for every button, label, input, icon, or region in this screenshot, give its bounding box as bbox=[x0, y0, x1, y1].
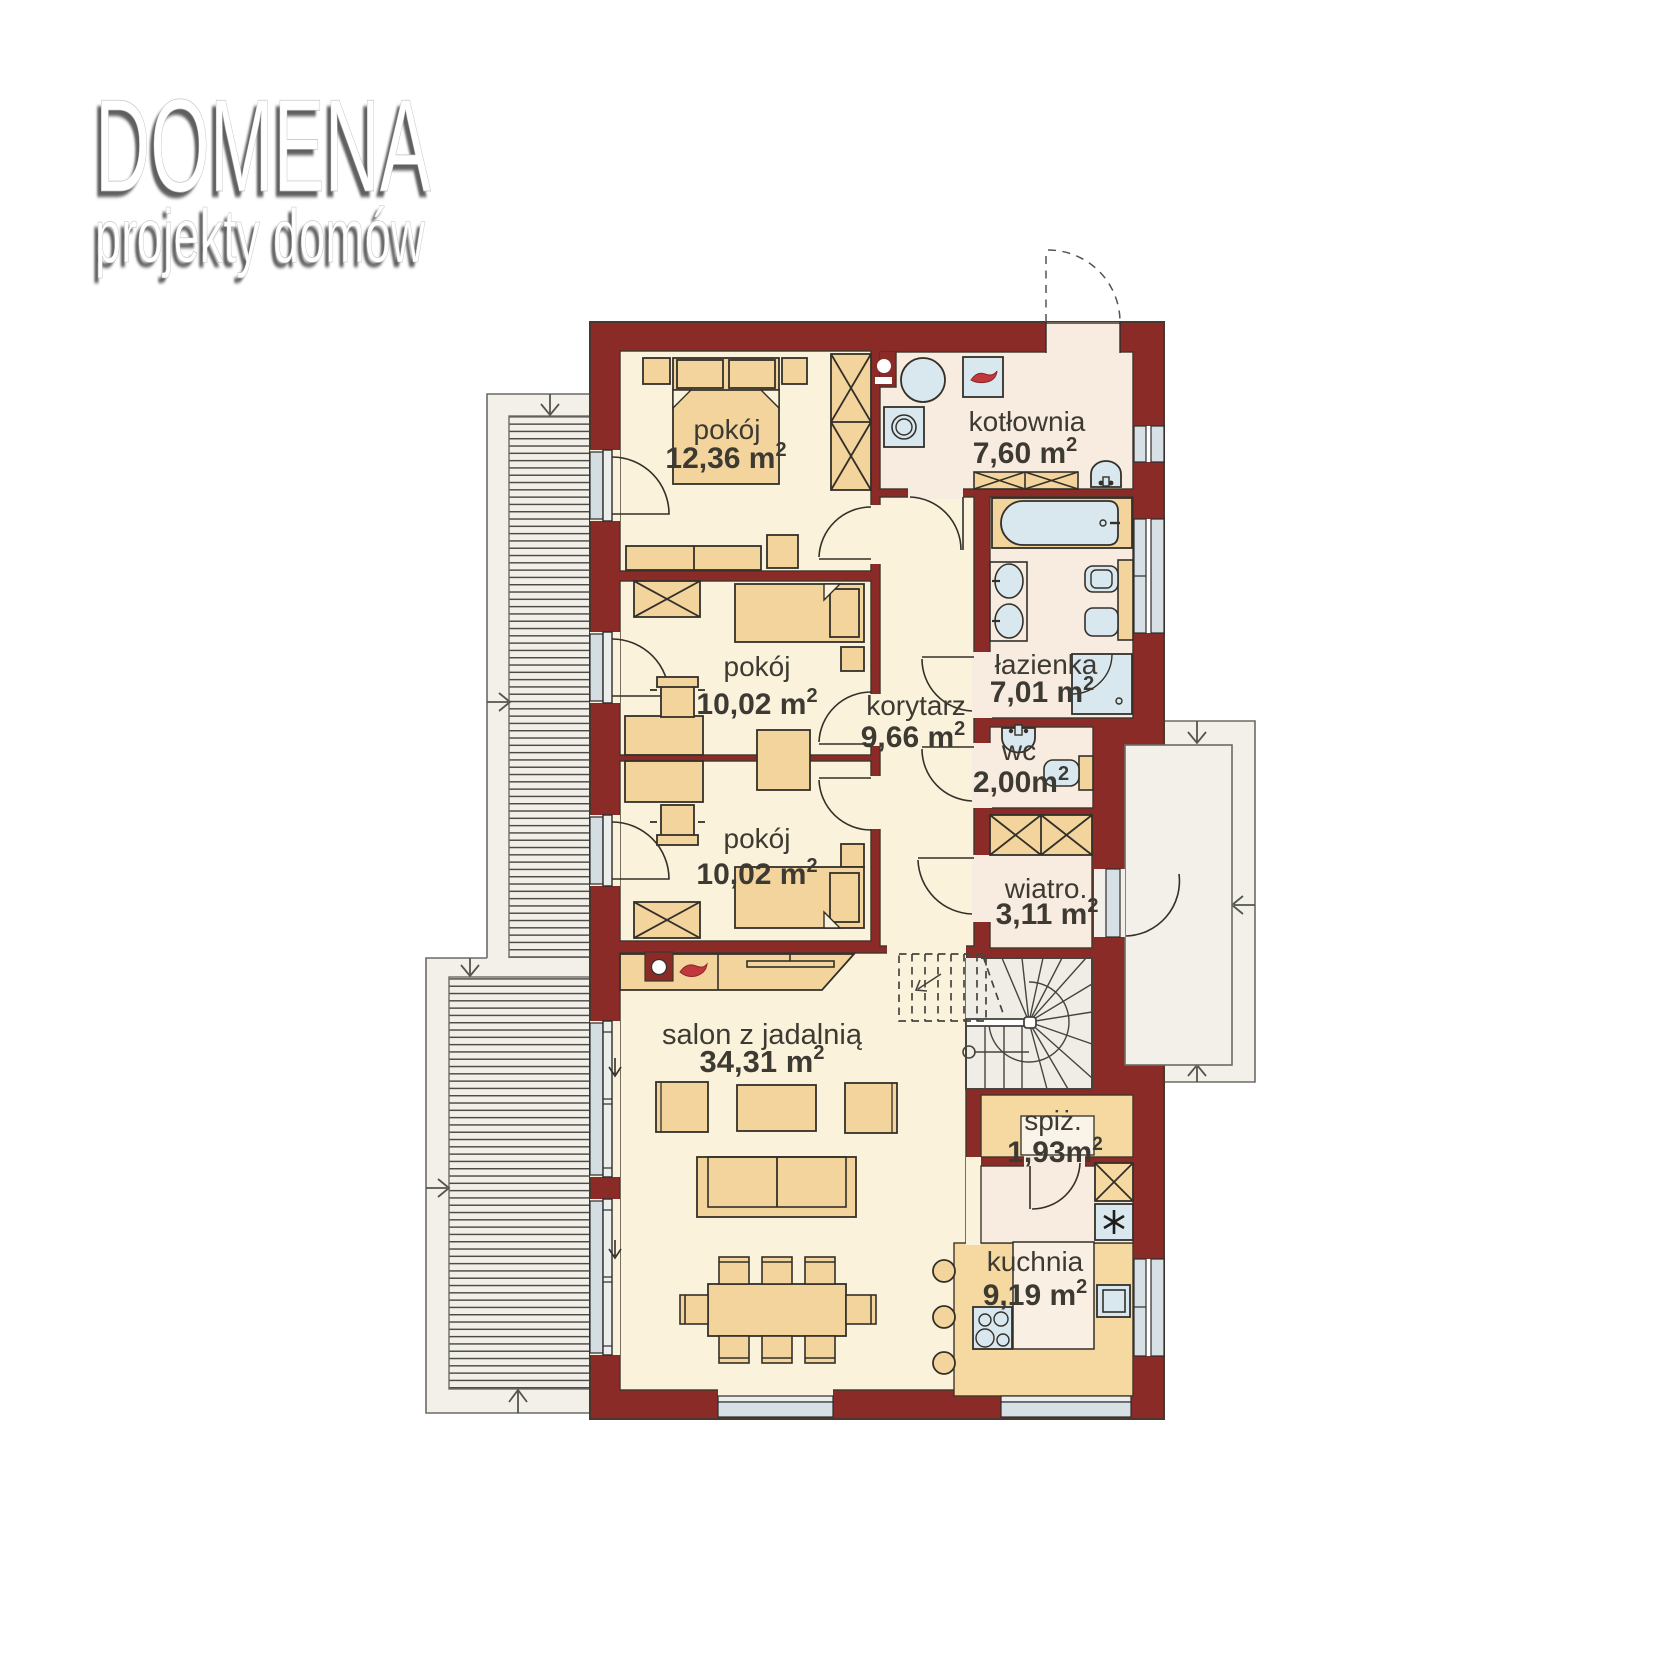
svg-text:9,66 m2: 9,66 m2 bbox=[861, 718, 966, 754]
svg-text:pokój: pokój bbox=[694, 414, 761, 445]
svg-text:10,02 m2: 10,02 m2 bbox=[696, 685, 817, 721]
svg-text:pokój: pokój bbox=[724, 823, 791, 854]
svg-text:projekty domów: projekty domów bbox=[95, 195, 425, 279]
svg-text:pokój: pokój bbox=[724, 651, 791, 682]
svg-text:1,93m2: 1,93m2 bbox=[1007, 1134, 1103, 1169]
svg-text:12,36 m2: 12,36 m2 bbox=[665, 439, 786, 475]
svg-text:spiż.: spiż. bbox=[1024, 1105, 1082, 1136]
svg-text:7,60 m2: 7,60 m2 bbox=[973, 434, 1078, 470]
svg-text:2,00m2: 2,00m2 bbox=[973, 763, 1069, 799]
svg-text:korytarz: korytarz bbox=[866, 690, 966, 721]
svg-text:wc: wc bbox=[1001, 735, 1036, 766]
svg-text:10,02 m2: 10,02 m2 bbox=[696, 855, 817, 891]
svg-text:kotłownia: kotłownia bbox=[969, 406, 1086, 437]
svg-text:kuchnia: kuchnia bbox=[987, 1246, 1084, 1277]
svg-text:3,11 m2: 3,11 m2 bbox=[996, 895, 1099, 931]
svg-text:7,01 m2: 7,01 m2 bbox=[990, 673, 1095, 709]
svg-text:9,19 m2: 9,19 m2 bbox=[983, 1276, 1088, 1312]
svg-text:34,31 m2: 34,31 m2 bbox=[700, 1042, 825, 1079]
